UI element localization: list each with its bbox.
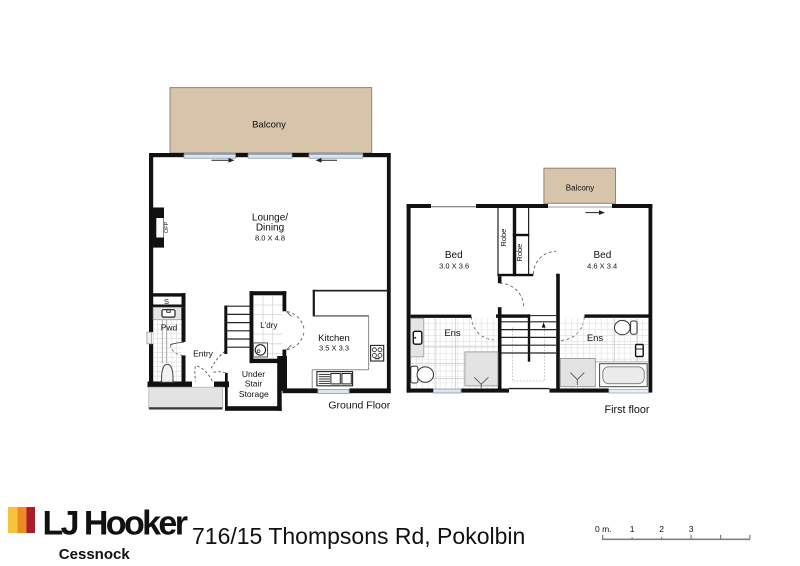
svg-text:3.0 X 3.6: 3.0 X 3.6 (439, 261, 469, 270)
svg-text:Under: Under (242, 369, 265, 379)
svg-text:Bed: Bed (445, 250, 463, 261)
svg-text:Pwd: Pwd (161, 323, 178, 333)
svg-text:First floor: First floor (605, 404, 650, 416)
svg-text:L'dry: L'dry (260, 321, 277, 330)
svg-text:Robe: Robe (515, 244, 524, 262)
svg-text:Balcony: Balcony (566, 183, 594, 192)
svg-text:Cessnock: Cessnock (59, 546, 131, 563)
svg-text:Dining: Dining (256, 223, 284, 234)
svg-text:Kitchen: Kitchen (318, 333, 350, 344)
svg-text:4.6 X 3.4: 4.6 X 3.4 (587, 261, 617, 270)
svg-text:Ens: Ens (587, 333, 604, 344)
svg-text:OFP: OFP (164, 222, 170, 234)
svg-text:Ens: Ens (444, 328, 461, 339)
svg-text:3: 3 (689, 524, 694, 534)
svg-text:S: S (164, 297, 169, 306)
svg-text:Balcony: Balcony (252, 120, 286, 131)
svg-text:Storage: Storage (239, 389, 269, 399)
svg-text:Robe: Robe (499, 229, 508, 247)
svg-text:Ground Floor: Ground Floor (328, 399, 390, 411)
svg-text:2: 2 (659, 524, 664, 534)
svg-text:Entry: Entry (193, 348, 214, 358)
svg-text:Bed: Bed (594, 250, 612, 261)
svg-text:3.5 X 3.3: 3.5 X 3.3 (319, 343, 349, 352)
svg-text:LJ Hooker: LJ Hooker (43, 505, 188, 543)
svg-text:0 m.: 0 m. (595, 524, 612, 534)
svg-text:8.0 X 4.8: 8.0 X 4.8 (255, 233, 285, 242)
svg-text:716/15 Thompsons Rd, Pokolbin: 716/15 Thompsons Rd, Pokolbin (192, 523, 525, 549)
svg-text:Stair: Stair (245, 378, 263, 388)
svg-text:1: 1 (630, 524, 635, 534)
